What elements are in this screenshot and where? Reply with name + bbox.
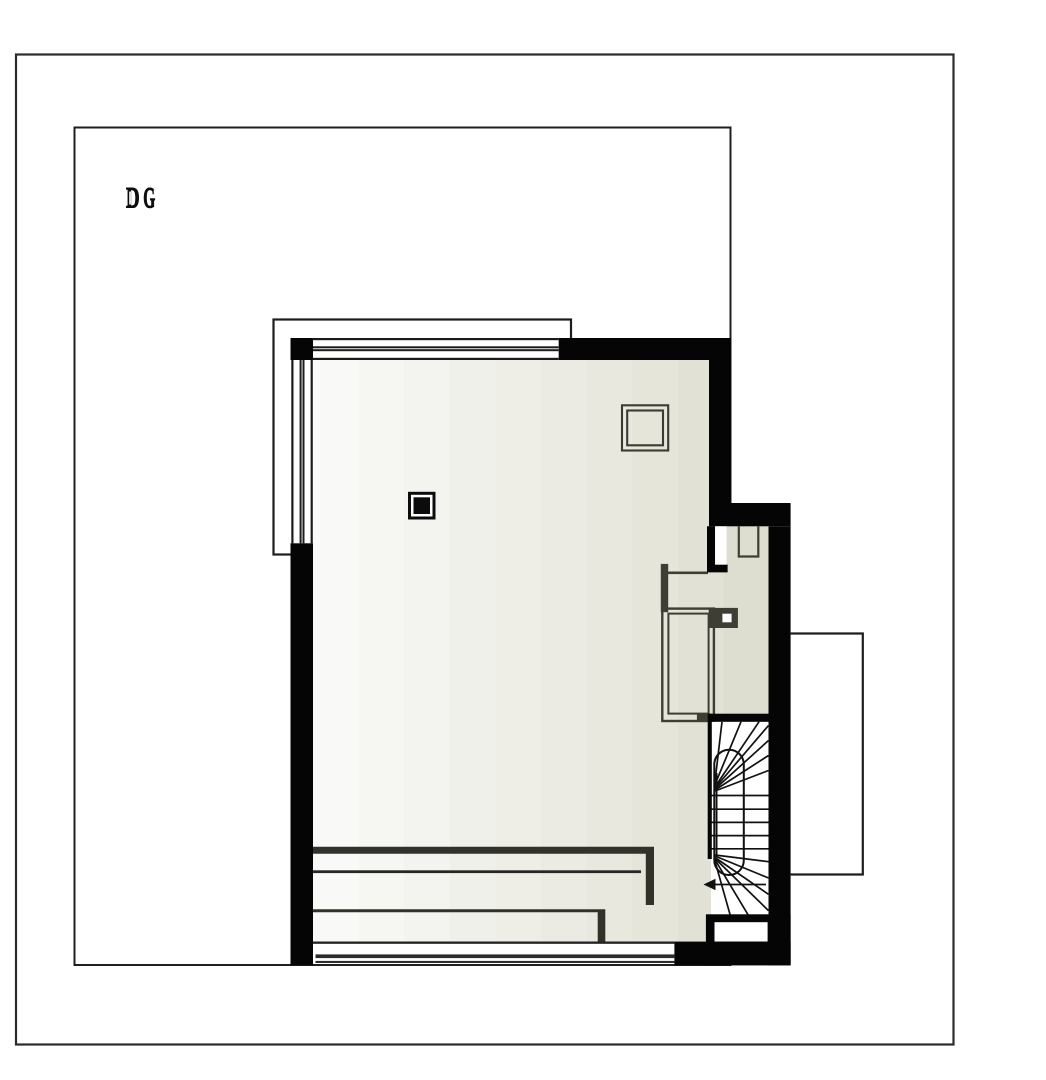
svg-text:D: D xyxy=(126,182,140,215)
